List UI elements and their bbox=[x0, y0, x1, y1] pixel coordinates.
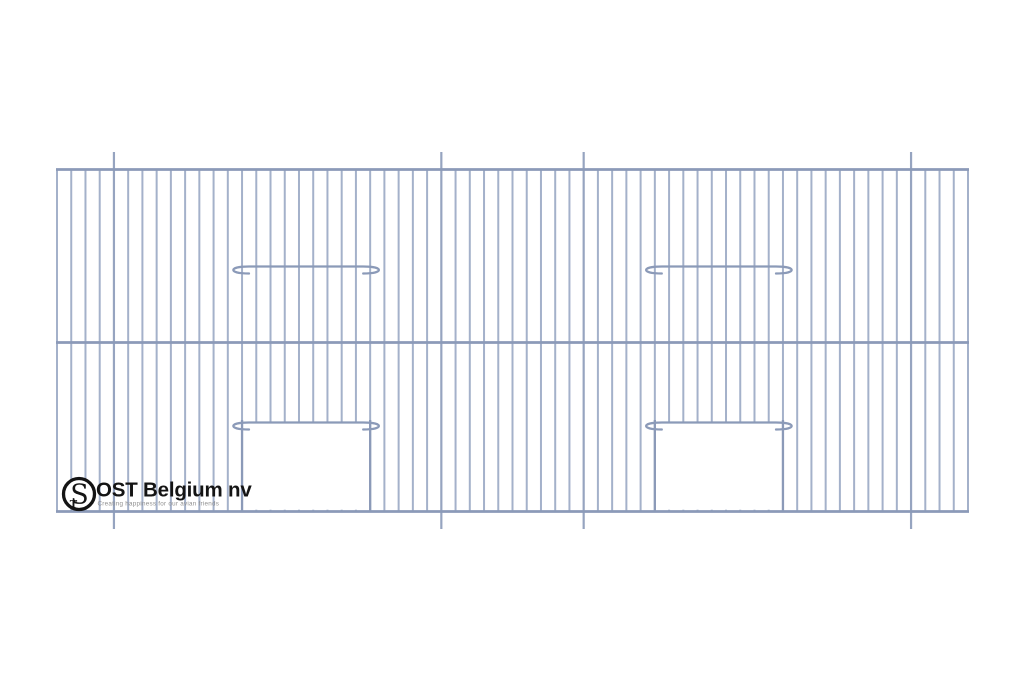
brand-tagline: Creating happiness for our avian friends bbox=[98, 501, 220, 508]
door-opening bbox=[244, 423, 369, 510]
brand-name: OST Belgium nv bbox=[96, 479, 252, 502]
door-opening bbox=[656, 423, 781, 510]
cage-front-drawing: S T OST Belgium nv Creating happiness fo… bbox=[0, 0, 1024, 683]
brand-monogram-letter-t: T bbox=[70, 500, 78, 511]
brand-logo: S T OST Belgium nv Creating happiness fo… bbox=[64, 479, 253, 511]
perch-hook-wire bbox=[646, 267, 792, 274]
perch-hook-wire bbox=[233, 267, 379, 274]
product-drawing-canvas: S T OST Belgium nv Creating happiness fo… bbox=[0, 0, 1024, 683]
vertical-wires bbox=[57, 152, 968, 529]
